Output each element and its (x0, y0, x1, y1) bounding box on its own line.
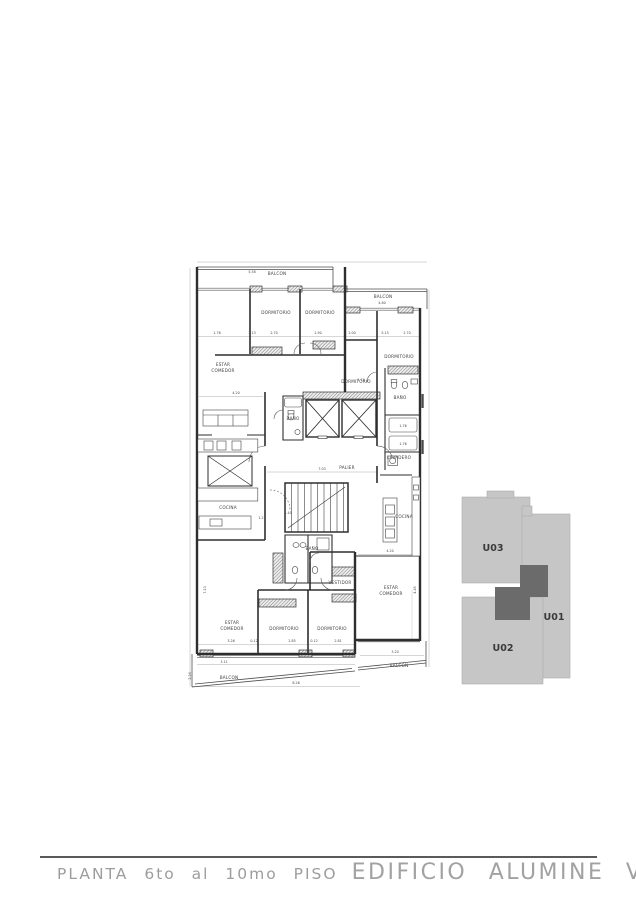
room-label: LAVADERO (387, 455, 412, 460)
dimension-label: 4.20 (232, 391, 239, 395)
dimension-label: 3.13 (248, 331, 255, 335)
room-label: COMEDOR (211, 368, 234, 373)
unit-label: U03 (483, 543, 504, 554)
stairs (270, 483, 348, 532)
room-label: DORMITORIO (261, 310, 291, 315)
room-label: ESTAR (384, 585, 398, 590)
dimension-label: 3.26 (227, 639, 234, 643)
plan-title: PLANTA 6to al 10mo PISO (40, 865, 338, 883)
dimension-labels: 5.584.801.763.132.702.902.005.152.701.74… (188, 270, 417, 685)
drawing-sheet: BALCONDORMITORIODORMITORIOBALCONDORMITOR… (0, 0, 636, 900)
dimension-label: 1.76 (213, 331, 220, 335)
room-label: DORMITORIO (305, 310, 335, 315)
room-label: DORMITORIO (269, 626, 299, 631)
dimension-label: 1.74 (357, 378, 364, 382)
floor-plan: BALCONDORMITORIODORMITORIOBALCONDORMITOR… (185, 255, 440, 695)
dimension-label: 2.70 (270, 331, 277, 335)
room-label: DORMITORIO (341, 379, 371, 384)
room-label: PALIER (339, 465, 354, 470)
dimension-label: 2.24 (188, 672, 192, 679)
dimension-label: 1.21 (258, 516, 265, 520)
title-rule (40, 856, 597, 858)
dimension-label: 2.85 (288, 639, 295, 643)
dimension-label: 0.12 (310, 639, 317, 643)
dimension-label: 8.26 (292, 681, 299, 685)
dimension-label: 1.76 (399, 442, 406, 446)
room-label: BALCON (220, 675, 239, 680)
room-label: ESTAR (225, 620, 239, 625)
dimension-label: 5.15 (381, 331, 388, 335)
dimension-label: 1.76 (399, 424, 406, 428)
room-label: BALCON (374, 294, 393, 299)
room-label: COMEDOR (220, 626, 243, 631)
key-plan: U03U01U02 (455, 485, 590, 695)
room-label: DORMITORIO (384, 354, 414, 359)
room-label: BAÑO (287, 416, 300, 421)
title-block: PLANTA 6to al 10mo PISO EDIFICIO ALUMINE… (40, 860, 600, 885)
elevator-shafts (306, 400, 376, 439)
dimension-label: 2.00 (348, 331, 355, 335)
building-title: EDIFICIO ALUMINE VIII (352, 860, 636, 885)
unit-label: U02 (493, 643, 514, 654)
room-label: COCINA (219, 505, 237, 510)
room-label: BALCON (390, 663, 409, 668)
room-label: ESTAR (216, 362, 230, 367)
dimension-label: 2.90 (314, 331, 321, 335)
dimension-label: 7.03 (318, 467, 325, 471)
room-label: BAÑO (394, 395, 407, 400)
hatched-walls (200, 286, 418, 657)
unit-label: U01 (544, 612, 565, 623)
dimension-label: 7.13 (203, 586, 207, 593)
room-label: BALCON (268, 271, 287, 276)
dimension-label: 4.45 (413, 586, 417, 593)
air-shaft (208, 456, 252, 486)
fixtures (198, 379, 420, 574)
room-label: VESTIDOR (329, 580, 352, 585)
room-label: BAÑO (306, 546, 319, 551)
duct-annotations (422, 394, 424, 454)
dimension-label: 3.11 (220, 660, 227, 664)
dimension-label: 4.80 (378, 301, 385, 305)
dimension-label: 5.58 (248, 270, 255, 274)
dimension-label: 2.81 (334, 639, 341, 643)
room-label: COMEDOR (379, 591, 402, 596)
room-label: DORMITORIO (317, 626, 347, 631)
dimension-label: 3.20 (391, 650, 398, 654)
room-label: COCINA (395, 514, 413, 519)
dimension-label: 2.70 (403, 331, 410, 335)
dimension-label: 4.20 (386, 549, 393, 553)
dimension-label: 1.40 (284, 511, 291, 515)
dimension-label: 0.12 (250, 639, 257, 643)
